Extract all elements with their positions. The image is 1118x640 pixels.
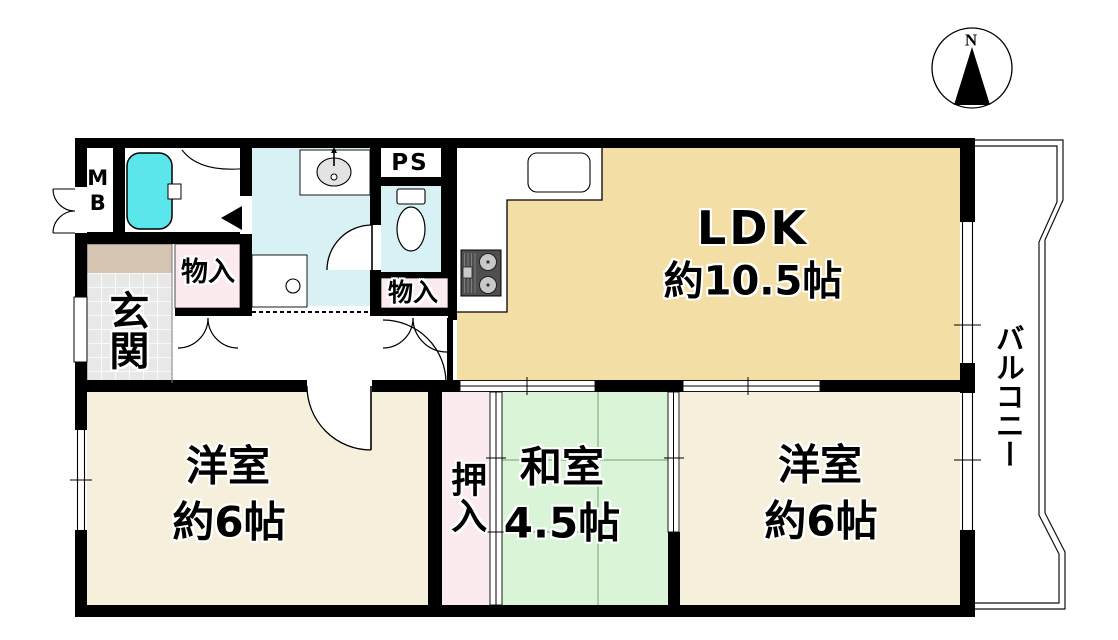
- gas-stove-icon: [461, 250, 501, 296]
- ldk-label: LDK: [697, 203, 809, 255]
- ldk-size-label: 約10.5帖: [664, 260, 843, 305]
- balcony-label: バルコニー: [992, 324, 1024, 469]
- wall-top: [75, 138, 975, 148]
- closet-label: 押入: [445, 461, 485, 533]
- western-room-left-size-label: 約6帖: [172, 498, 285, 545]
- western-room-left-label: 洋室: [186, 442, 270, 489]
- kitchen-sink-icon: [528, 153, 590, 192]
- bathtub-icon: [127, 153, 181, 229]
- entrance-door: [74, 297, 87, 362]
- meter-box-doors: [53, 189, 75, 233]
- washbasin-icon: [300, 147, 370, 195]
- ldk-door-leaf: [447, 318, 453, 383]
- western-room-right-size-label: 約6帖: [764, 497, 877, 544]
- storage-hall-doors: [178, 318, 238, 348]
- wall-right: [960, 138, 975, 617]
- entrance-step: [87, 244, 172, 273]
- japanese-room-size-label: 4.5帖: [504, 499, 620, 546]
- wall-bottom: [75, 605, 975, 617]
- storage-toilet-doors: [383, 318, 447, 352]
- meter-box-label: MB: [85, 166, 109, 216]
- pipe-space-label: PS: [391, 151, 428, 177]
- storage-toilet-label: 物入: [388, 279, 438, 307]
- storage-hall-label: 物入: [181, 258, 235, 288]
- japanese-room-label: 和室: [520, 443, 604, 490]
- western-room-right-label: 洋室: [778, 441, 862, 488]
- floor-plan: N LDK 約10.5帖 洋室 約6帖 和室 4.5帖 洋室 約6帖 押入 玄関…: [0, 0, 1118, 640]
- compass-north-label: N: [965, 30, 977, 49]
- entrance-label: 玄関: [103, 290, 148, 370]
- toilet-icon: [397, 189, 425, 251]
- washing-machine-pan-icon: [252, 255, 307, 307]
